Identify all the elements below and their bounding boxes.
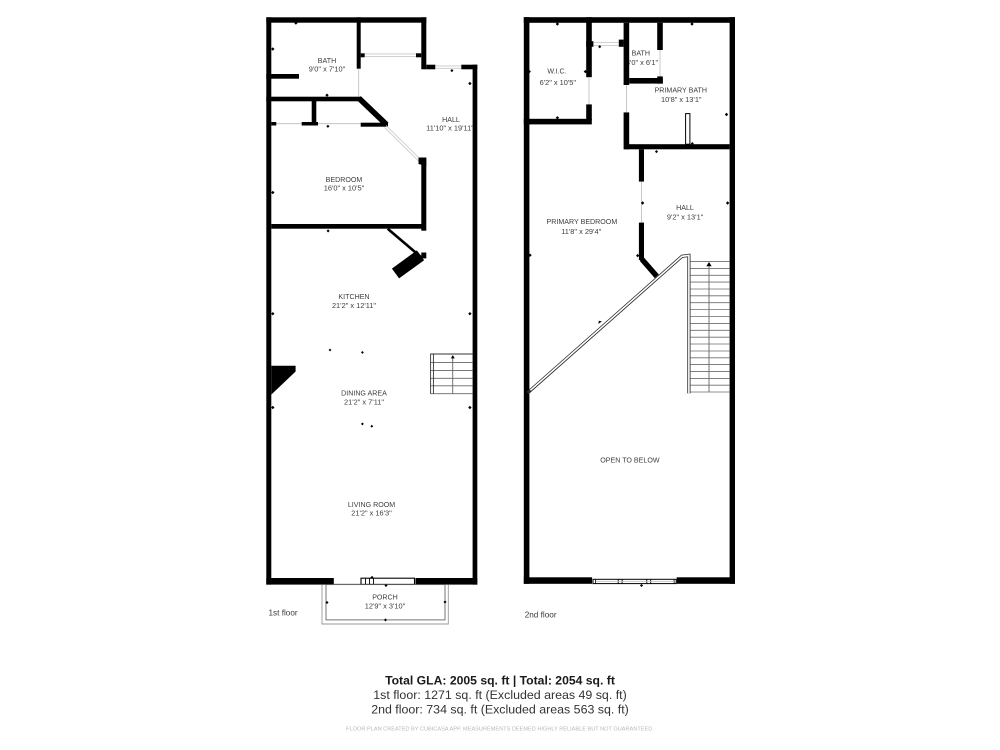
- svg-text:9'2" x 13'1": 9'2" x 13'1": [667, 212, 704, 221]
- svg-text:PORCH: PORCH: [372, 594, 398, 602]
- svg-text:21'2" x 12'11": 21'2" x 12'11": [332, 301, 376, 310]
- svg-text:11'8" x 29'4": 11'8" x 29'4": [561, 227, 601, 236]
- svg-text:BATH: BATH: [632, 49, 650, 57]
- svg-text:2nd floor: 734 sq. ft (Exclude: 2nd floor: 734 sq. ft (Excluded areas 56…: [371, 703, 629, 717]
- svg-text:16'0" x 10'5": 16'0" x 10'5": [324, 184, 365, 193]
- svg-text:2nd floor: 2nd floor: [525, 611, 557, 620]
- svg-text:Total GLA: 2005 sq. ft | Total: Total GLA: 2005 sq. ft | Total: 2054 sq.…: [385, 674, 615, 688]
- svg-text:1st floor: 1st floor: [269, 609, 298, 618]
- svg-text:DINING AREA: DINING AREA: [341, 390, 387, 398]
- svg-text:KITCHEN: KITCHEN: [338, 293, 369, 301]
- svg-text:PRIMARY BEDROOM: PRIMARY BEDROOM: [547, 218, 618, 226]
- svg-text:PRIMARY BATH: PRIMARY BATH: [655, 87, 707, 95]
- svg-text:9'0" x 7'10": 9'0" x 7'10": [309, 65, 346, 74]
- svg-text:10'8" x 13'1": 10'8" x 13'1": [661, 95, 702, 104]
- svg-text:8'0" x 6'1": 8'0" x 6'1": [626, 58, 659, 67]
- svg-text:12'9" x 3'10": 12'9" x 3'10": [365, 602, 406, 611]
- svg-text:OPEN TO BELOW: OPEN TO BELOW: [600, 457, 660, 465]
- svg-text:1st floor: 1271 sq. ft (Exclud: 1st floor: 1271 sq. ft (Excluded areas 4…: [373, 688, 626, 702]
- svg-text:21'2" x 7'11": 21'2" x 7'11": [344, 398, 384, 407]
- svg-text:6'2" x 10'5": 6'2" x 10'5": [540, 78, 577, 87]
- svg-text:11'10" x 19'11": 11'10" x 19'11": [426, 124, 474, 133]
- svg-text:21'2" x 16'3": 21'2" x 16'3": [351, 509, 392, 518]
- svg-text:HALL: HALL: [676, 204, 694, 212]
- svg-text:W.I.C.: W.I.C.: [547, 68, 566, 76]
- svg-text:FLOOR PLAN CREATED BY CUBICASA: FLOOR PLAN CREATED BY CUBICASA APP. MEAS…: [346, 727, 654, 733]
